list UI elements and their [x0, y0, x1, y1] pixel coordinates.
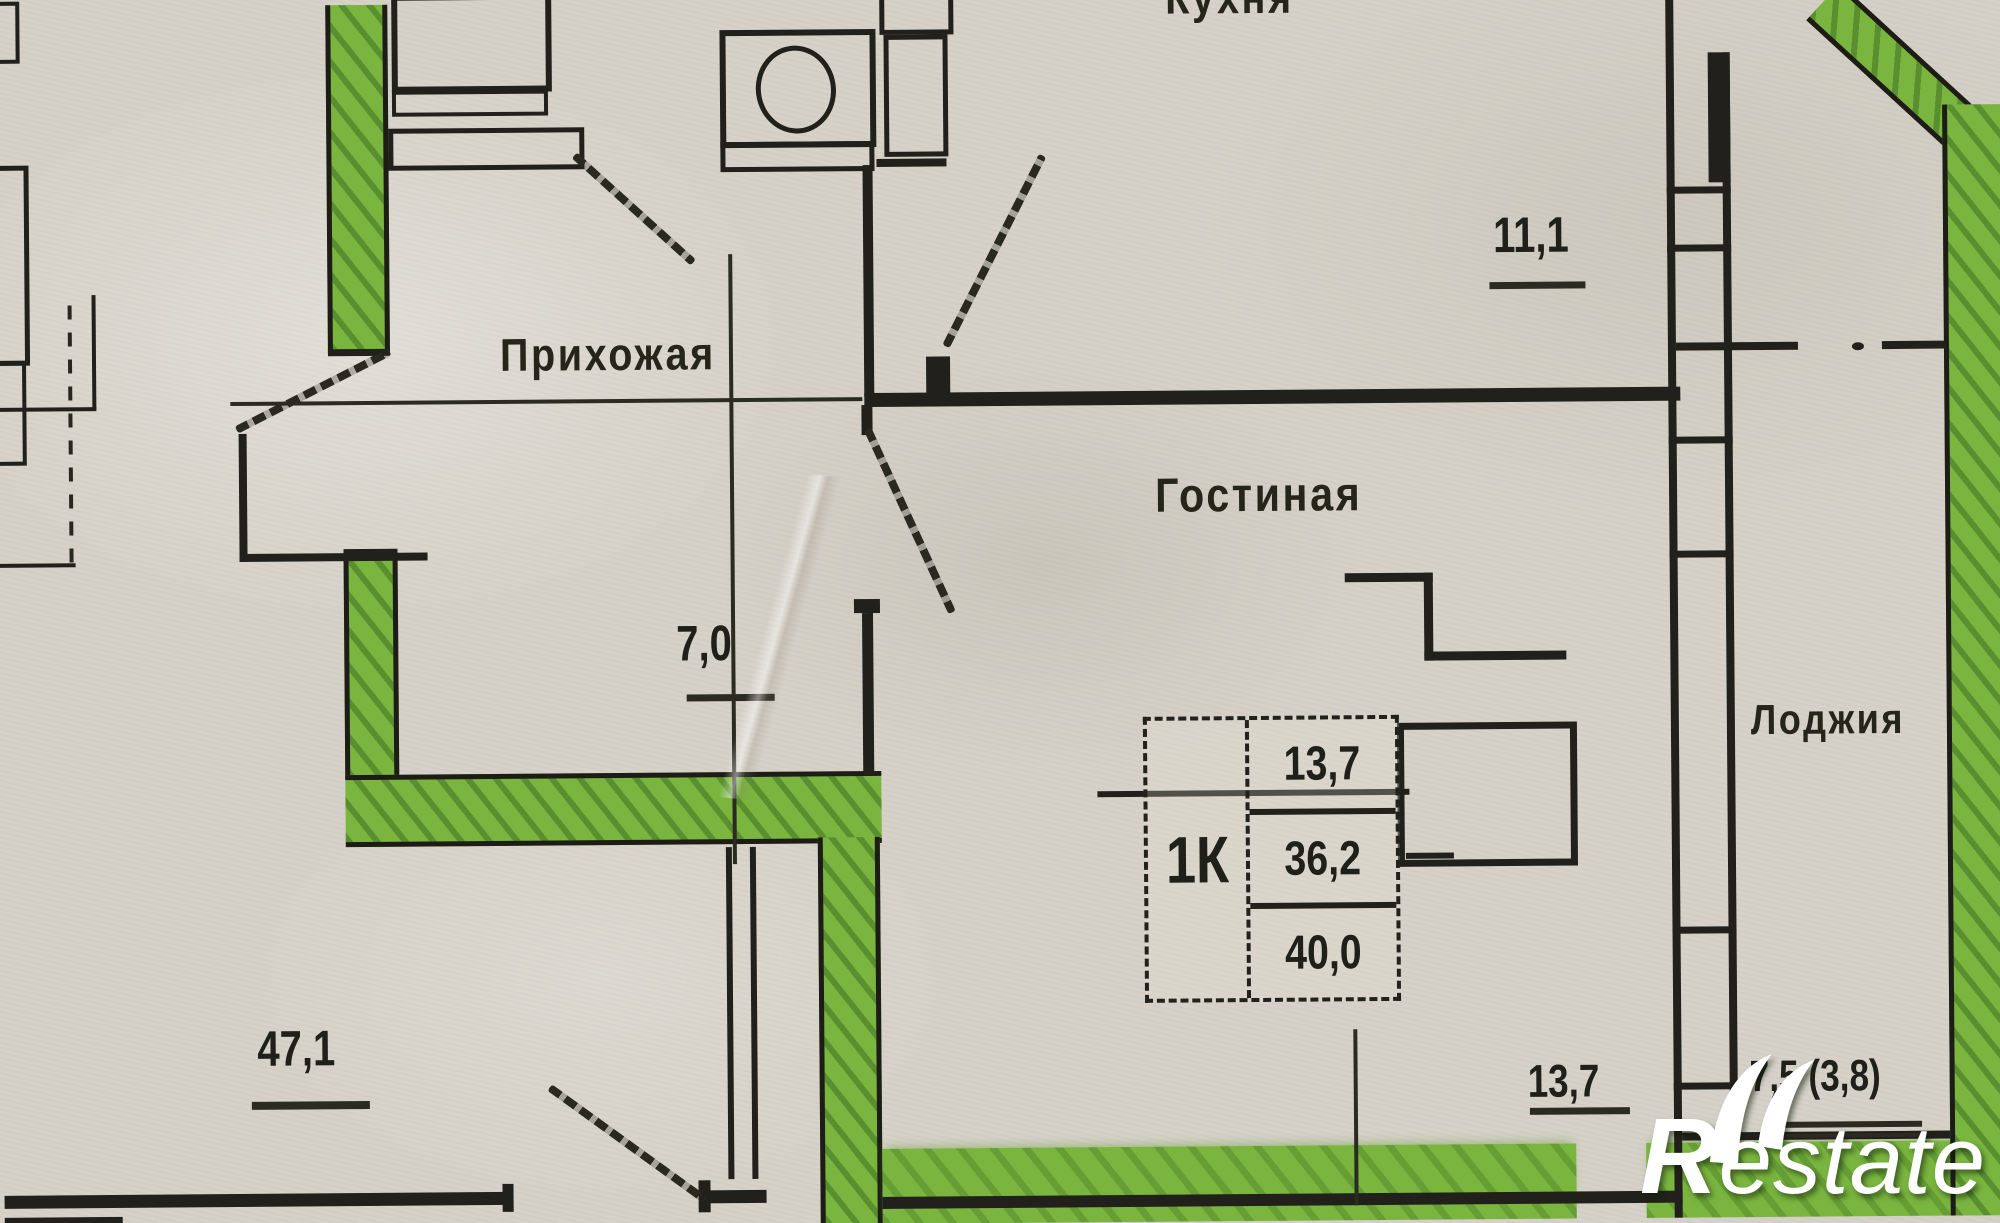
wall: [91, 295, 96, 409]
door-jamb: [502, 1184, 513, 1212]
stamp-values-column: 13,7 36,2 40,0: [1249, 719, 1397, 998]
wall: [0, 563, 76, 568]
dashed-line: [68, 305, 74, 569]
door-jamb: [926, 356, 950, 394]
window-mullion: [1667, 186, 1731, 194]
loggia-wall: [1665, 0, 1683, 1218]
highlighted-wall: [818, 837, 883, 1223]
apartment-stamp-table: 1К 13,7 36,2 40,0: [1143, 715, 1401, 1003]
room-label-hallway: Прихожая: [500, 326, 716, 382]
door-swing: [572, 152, 696, 265]
dimension-extension-line: [1353, 1029, 1358, 1205]
stamp-unit-type: 1К: [1165, 821, 1229, 897]
loggia-divider: [1882, 341, 1946, 350]
dimension-underline: [1530, 1107, 1630, 1115]
furniture-block: [1397, 721, 1578, 866]
dimension-living-area: 13,7: [1527, 1053, 1599, 1108]
highlighted-wall: [882, 1143, 1577, 1223]
stamp-apartment-area: 36,2: [1284, 831, 1361, 887]
door-swing: [547, 1084, 707, 1202]
loggia-window-frame: [1722, 52, 1739, 1138]
room-label-loggia: Лоджия: [1751, 695, 1906, 744]
window-mullion: [1672, 926, 1736, 934]
toilet-fixture: [0, 362, 27, 466]
stamp-total-area: 40,0: [1285, 925, 1362, 981]
appliance-fixture: [392, 90, 548, 117]
stove-fixture: [879, 0, 953, 35]
dimension-underline: [252, 1101, 370, 1110]
room-label-living: Гостиная: [1155, 467, 1363, 524]
appliance-fixture: [391, 0, 552, 93]
stamp-total-area-cell: 40,0: [1250, 908, 1397, 998]
wall: [862, 165, 874, 397]
stamp-unit-type-cell: 1К: [1147, 720, 1251, 999]
highlighted-wall: [1942, 104, 2000, 1215]
stamp-apartment-area-cell: 36,2: [1250, 814, 1397, 910]
paper-crease: [685, 465, 866, 808]
door-swing: [864, 427, 956, 614]
wall: [726, 847, 735, 1179]
partition-wall: [1424, 573, 1434, 661]
stamp-room-area: 13,7: [1284, 736, 1361, 792]
window-mullion: [1667, 244, 1731, 252]
partition-wall: [1345, 573, 1433, 583]
dimension-underline: [1489, 281, 1585, 289]
bottom-wall: [5, 1192, 511, 1209]
window-mullion: [1669, 436, 1733, 444]
fixture: [0, 2, 20, 64]
bottom-wall: [5, 1217, 123, 1223]
door-swing: [235, 348, 392, 433]
room-label-kitchen: Кухня: [1165, 0, 1294, 25]
loggia-divider-dot: [1852, 342, 1864, 350]
wall: [240, 552, 428, 561]
stamp-room-area-cell: 13,7: [1249, 719, 1396, 815]
counter-fixture: [720, 141, 874, 172]
watermark-logo: Restate: [1640, 1094, 1986, 1218]
wall: [862, 613, 874, 775]
door-jamb: [854, 599, 880, 613]
highlighted-wall: [344, 553, 400, 779]
counter-edge: [876, 158, 946, 167]
bottom-wall: [705, 1190, 767, 1203]
partition-wall: [1424, 651, 1566, 661]
window-bar: [388, 127, 584, 171]
bath-fixture: [0, 166, 30, 366]
wall: [864, 387, 1680, 407]
wall: [750, 847, 759, 1179]
dimension-neighbor-area: 47,1: [257, 1019, 335, 1078]
dimension-kitchen-area: 11,1: [1493, 206, 1569, 265]
door-swing: [942, 154, 1046, 349]
dimension-line: [230, 397, 862, 406]
stove-fixture: [883, 34, 948, 156]
window-sash: [1708, 52, 1731, 182]
window-mullion: [1670, 550, 1734, 558]
floor-plan: Кухня Прихожая Гостиная Лоджия 11,1 7,0 …: [0, 0, 2000, 1223]
highlighted-wall: [325, 5, 390, 353]
logo-wing-icon: [1706, 1050, 1836, 1168]
loggia-divider: [1676, 342, 1798, 351]
floor-plan-scan: Кухня Прихожая Гостиная Лоджия 11,1 7,0 …: [0, 0, 2000, 1223]
wall: [239, 434, 248, 562]
